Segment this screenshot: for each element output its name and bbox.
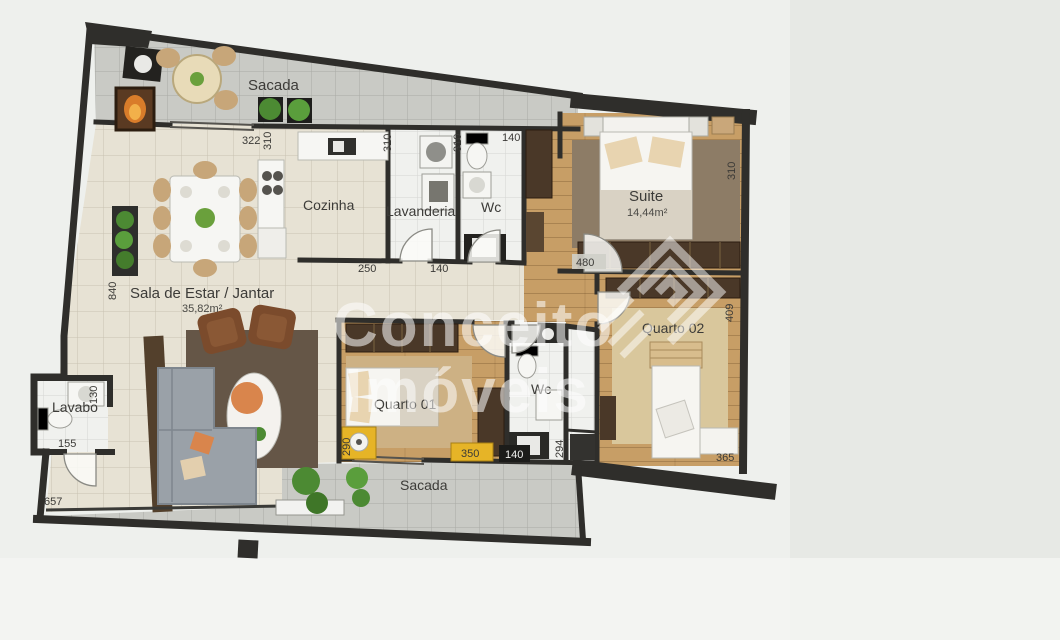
quarto02-desk [700,428,738,454]
toilet-tank [466,133,488,144]
dim-quarto01-w: 350 [461,448,479,460]
hall-console [526,212,544,252]
dim-wc-bottom-w: 140 [505,449,523,461]
dim-sacada-bottom: 657 [44,496,62,508]
chair [239,234,257,258]
floorplan-image: 322 310 310 310 140 250 140 480 310 409 … [0,0,1060,640]
dim-cozinha-w: 250 [358,263,376,275]
armchair [247,303,297,350]
wall-pillar [238,539,259,558]
dim-lavanderia-w: 140 [430,263,448,275]
floorplan-svg: 322 310 310 310 140 250 140 480 310 409 … [0,0,1060,640]
dim-sacada-top: 322 [242,135,260,147]
chair [239,206,257,230]
background-right-panel [790,0,1060,640]
chair [212,46,236,66]
area-suite: 14,44m² [627,207,668,219]
closet-shower [570,434,595,460]
label-sacada-bottom: Sacada [400,477,448,493]
watermark-line1: Conceito [333,291,614,360]
fridge [258,228,286,258]
area-sala: 35,82m² [182,303,223,315]
bush [306,492,328,514]
label-sala: Sala de Estar / Jantar [130,285,274,302]
quarto02-dresser [600,396,616,440]
chair [156,48,180,68]
toilet-tank [38,408,48,430]
dim-sala-h: 840 [107,282,119,300]
dim-wc-top-w: 140 [502,132,520,144]
chair [214,90,238,110]
dim-cozinha-h: 310 [262,132,274,150]
label-sacada-top: Sacada [248,77,300,94]
chair [153,178,171,202]
chair [153,234,171,258]
toilet [467,143,487,169]
tray [231,382,263,414]
bush [292,467,320,495]
dim-quarto01-h: 290 [341,438,353,456]
label-lavabo: Lavabo [52,399,98,415]
dim-lavabo-w: 155 [58,438,76,450]
quarto02-headboard [650,342,702,368]
watermark-line2: Imóveis [345,357,590,426]
chair [193,161,217,179]
dim-quarto02-w: 365 [716,452,734,464]
bush [352,489,370,507]
label-lavanderia: Lavanderia [386,203,455,219]
dim-quarto02-h: 409 [724,304,736,322]
dim-wc-top-h: 310 [452,134,464,152]
plant [259,98,281,120]
chair [193,259,217,277]
suite-bench [712,117,734,134]
dim-suite-h: 310 [726,162,738,180]
dim-lavanderia-h: 310 [382,134,394,152]
dim-wc-bottom-h: 294 [554,440,566,458]
label-wc-top: Wc [481,199,501,215]
chair [239,178,257,202]
label-suite: Suite [629,188,663,205]
plant [288,99,310,121]
chair [153,206,171,230]
label-cozinha: Cozinha [303,197,355,213]
dim-suite-door: 480 [576,257,594,269]
bush [346,467,368,489]
background-bottom [0,558,1060,640]
hall-cabinet [526,130,552,198]
